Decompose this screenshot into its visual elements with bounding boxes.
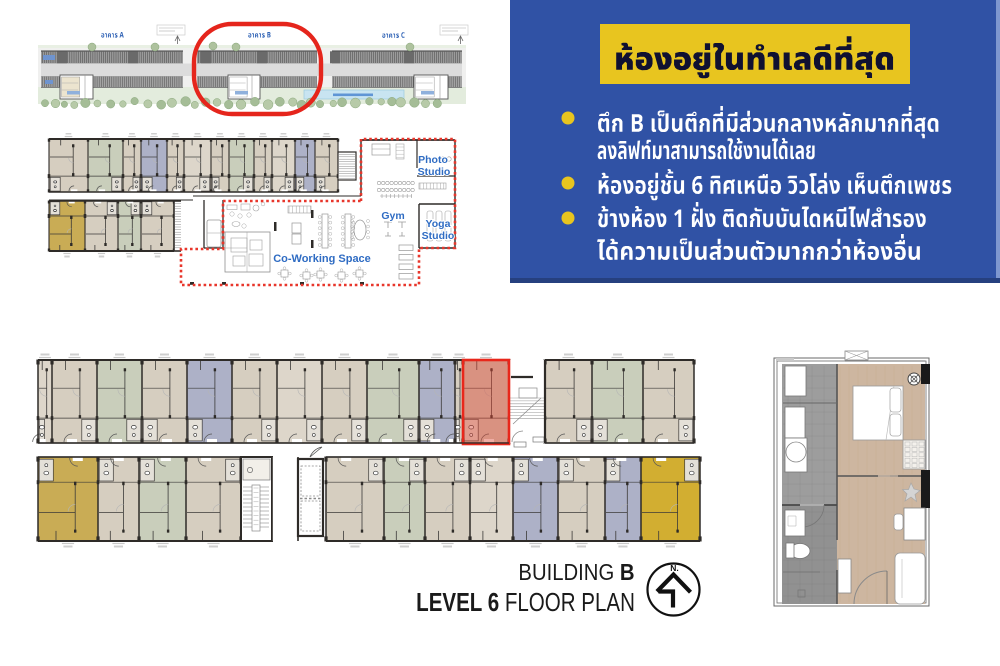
svg-text:Studio: Studio — [422, 230, 455, 242]
svg-text:Gym: Gym — [381, 210, 404, 222]
svg-text:Yoga: Yoga — [426, 218, 451, 230]
svg-text:Co-Working Space: Co-Working Space — [273, 253, 371, 265]
svg-text:Studio: Studio — [418, 166, 451, 178]
svg-text:N.: N. — [670, 563, 679, 573]
svg-text:Photo: Photo — [418, 154, 448, 166]
